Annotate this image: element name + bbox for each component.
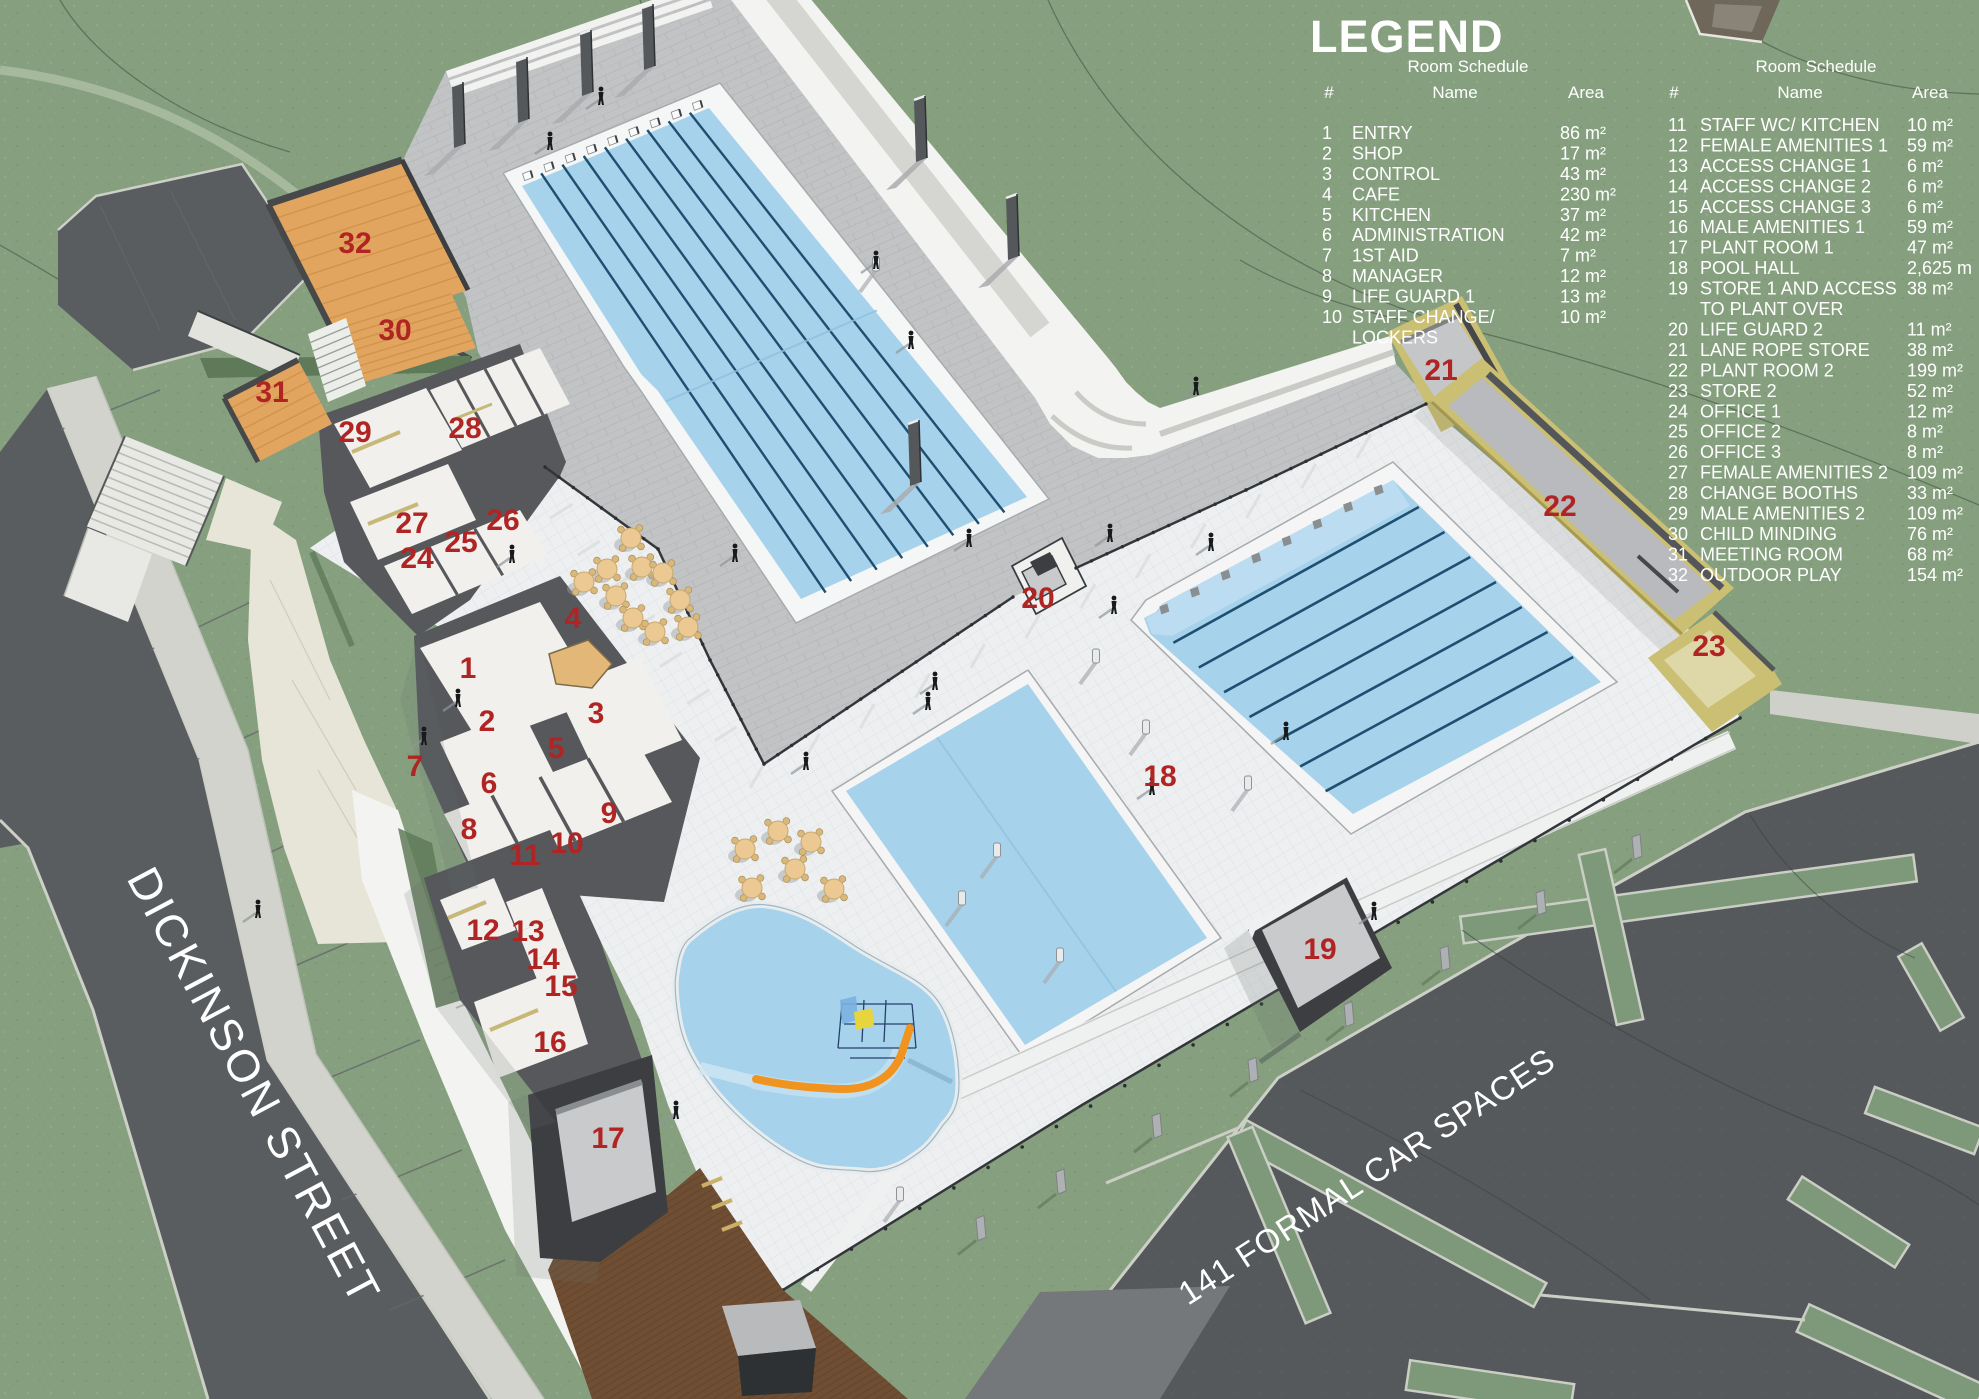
- svg-text:MALE AMENITIES 2: MALE AMENITIES 2: [1700, 504, 1865, 524]
- svg-text:37 m²: 37 m²: [1560, 205, 1606, 225]
- svg-text:24: 24: [1668, 401, 1688, 421]
- svg-text:KITCHEN: KITCHEN: [1352, 205, 1431, 225]
- svg-text:MANAGER: MANAGER: [1352, 266, 1443, 286]
- svg-text:10 m²: 10 m²: [1560, 307, 1606, 327]
- svg-text:6: 6: [1322, 225, 1332, 245]
- svg-text:17: 17: [1668, 238, 1688, 258]
- svg-text:7: 7: [407, 750, 424, 783]
- svg-text:OFFICE 2: OFFICE 2: [1700, 422, 1781, 442]
- svg-text:FEMALE AMENITIES 1: FEMALE AMENITIES 1: [1700, 135, 1888, 155]
- svg-text:1ST AID: 1ST AID: [1352, 246, 1419, 266]
- svg-text:26: 26: [486, 504, 519, 537]
- svg-text:Name: Name: [1777, 83, 1822, 102]
- svg-text:MEETING ROOM: MEETING ROOM: [1700, 544, 1843, 564]
- svg-text:16: 16: [533, 1026, 566, 1059]
- svg-text:Area: Area: [1912, 83, 1948, 102]
- svg-text:Area: Area: [1568, 83, 1604, 102]
- svg-text:11: 11: [1668, 115, 1687, 135]
- svg-text:3: 3: [1322, 164, 1332, 184]
- svg-text:20: 20: [1668, 320, 1688, 340]
- svg-text:38 m²: 38 m²: [1907, 279, 1953, 299]
- svg-text:13 m²: 13 m²: [1560, 287, 1606, 307]
- svg-text:59 m²: 59 m²: [1907, 135, 1953, 155]
- svg-text:POOL HALL: POOL HALL: [1700, 258, 1799, 278]
- svg-text:33 m²: 33 m²: [1907, 483, 1953, 503]
- svg-text:5: 5: [1322, 205, 1332, 225]
- svg-text:59 m²: 59 m²: [1907, 217, 1953, 237]
- svg-text:25: 25: [444, 526, 477, 559]
- svg-text:22: 22: [1668, 360, 1688, 380]
- svg-text:12: 12: [466, 914, 499, 947]
- svg-text:2: 2: [479, 705, 496, 738]
- svg-text:OFFICE 1: OFFICE 1: [1700, 401, 1781, 421]
- svg-text:109 m²: 109 m²: [1907, 504, 1963, 524]
- svg-text:Room Schedule: Room Schedule: [1408, 57, 1529, 76]
- svg-text:18: 18: [1143, 760, 1176, 793]
- svg-text:10: 10: [550, 827, 583, 860]
- svg-text:ACCESS CHANGE 2: ACCESS CHANGE 2: [1700, 176, 1871, 196]
- svg-text:LOCKERS: LOCKERS: [1352, 328, 1438, 348]
- svg-text:14: 14: [1668, 176, 1688, 196]
- svg-text:2,625 m: 2,625 m: [1907, 258, 1972, 278]
- svg-text:76 m²: 76 m²: [1907, 524, 1953, 544]
- svg-text:25: 25: [1668, 422, 1688, 442]
- svg-text:4: 4: [565, 602, 582, 635]
- svg-text:109 m²: 109 m²: [1907, 463, 1963, 483]
- svg-text:OFFICE 3: OFFICE 3: [1700, 442, 1781, 462]
- svg-text:43 m²: 43 m²: [1560, 164, 1606, 184]
- svg-text:12 m²: 12 m²: [1907, 401, 1953, 421]
- svg-text:MALE AMENITIES 1: MALE AMENITIES 1: [1700, 217, 1865, 237]
- svg-text:3: 3: [588, 697, 605, 730]
- svg-text:ACCESS CHANGE 3: ACCESS CHANGE 3: [1700, 197, 1871, 217]
- svg-text:2: 2: [1322, 143, 1332, 163]
- svg-text:1: 1: [1322, 123, 1332, 143]
- svg-text:16: 16: [1668, 217, 1688, 237]
- svg-text:28: 28: [448, 412, 481, 445]
- svg-text:6 m²: 6 m²: [1907, 176, 1943, 196]
- svg-text:ENTRY: ENTRY: [1352, 123, 1413, 143]
- svg-text:CHILD MINDING: CHILD MINDING: [1700, 524, 1837, 544]
- svg-text:29: 29: [338, 416, 371, 449]
- svg-text:42 m²: 42 m²: [1560, 225, 1606, 245]
- svg-text:28: 28: [1668, 483, 1688, 503]
- svg-text:8: 8: [1322, 266, 1332, 286]
- svg-text:32: 32: [1668, 565, 1688, 585]
- svg-text:7: 7: [1322, 246, 1332, 266]
- svg-text:LIFE GUARD 1: LIFE GUARD 1: [1352, 287, 1475, 307]
- svg-text:30: 30: [1668, 524, 1688, 544]
- svg-text:ACCESS CHANGE 1: ACCESS CHANGE 1: [1700, 156, 1871, 176]
- svg-text:11: 11: [509, 839, 541, 872]
- svg-text:32: 32: [338, 227, 371, 260]
- svg-text:12 m²: 12 m²: [1560, 266, 1606, 286]
- svg-text:18: 18: [1668, 258, 1688, 278]
- svg-text:13: 13: [1668, 156, 1688, 176]
- svg-text:15: 15: [1668, 197, 1688, 217]
- svg-text:STAFF CHANGE/: STAFF CHANGE/: [1352, 307, 1495, 327]
- svg-text:19: 19: [1303, 933, 1336, 966]
- svg-text:86 m²: 86 m²: [1560, 123, 1606, 143]
- svg-text:10 m²: 10 m²: [1907, 115, 1953, 135]
- svg-text:ADMINISTRATION: ADMINISTRATION: [1352, 225, 1505, 245]
- svg-text:29: 29: [1668, 504, 1688, 524]
- svg-text:8 m²: 8 m²: [1907, 422, 1943, 442]
- svg-text:7 m²: 7 m²: [1560, 246, 1596, 266]
- svg-text:SHOP: SHOP: [1352, 143, 1403, 163]
- svg-text:154 m²: 154 m²: [1907, 565, 1963, 585]
- svg-text:17 m²: 17 m²: [1560, 143, 1606, 163]
- svg-text:31: 31: [1668, 544, 1688, 564]
- svg-text:8 m²: 8 m²: [1907, 442, 1943, 462]
- svg-text:LIFE GUARD 2: LIFE GUARD 2: [1700, 320, 1823, 340]
- svg-text:20: 20: [1021, 582, 1054, 615]
- svg-text:9: 9: [601, 797, 618, 830]
- svg-text:6 m²: 6 m²: [1907, 156, 1943, 176]
- svg-text:Name: Name: [1432, 83, 1477, 102]
- svg-text:15: 15: [544, 970, 577, 1003]
- svg-text:47 m²: 47 m²: [1907, 238, 1953, 258]
- svg-text:23: 23: [1668, 381, 1688, 401]
- svg-text:22: 22: [1543, 490, 1576, 523]
- svg-text:#: #: [1669, 83, 1679, 102]
- svg-text:6: 6: [481, 767, 498, 800]
- svg-text:FEMALE AMENITIES 2: FEMALE AMENITIES 2: [1700, 463, 1888, 483]
- svg-text:9: 9: [1322, 287, 1332, 307]
- svg-text:Room Schedule: Room Schedule: [1756, 57, 1877, 76]
- svg-text:38 m²: 38 m²: [1907, 340, 1953, 360]
- svg-text:26: 26: [1668, 442, 1688, 462]
- svg-text:LANE ROPE STORE: LANE ROPE STORE: [1700, 340, 1870, 360]
- svg-text:30: 30: [378, 314, 411, 347]
- svg-text:PLANT ROOM 1: PLANT ROOM 1: [1700, 238, 1834, 258]
- svg-text:21: 21: [1424, 354, 1457, 387]
- svg-text:#: #: [1324, 83, 1334, 102]
- svg-text:STAFF WC/ KITCHEN: STAFF WC/ KITCHEN: [1700, 115, 1880, 135]
- svg-text:4: 4: [1322, 184, 1332, 204]
- svg-text:6 m²: 6 m²: [1907, 197, 1943, 217]
- svg-text:5: 5: [548, 732, 565, 765]
- svg-text:52 m²: 52 m²: [1907, 381, 1953, 401]
- svg-text:LEGEND: LEGEND: [1310, 11, 1504, 62]
- svg-text:24: 24: [400, 542, 434, 575]
- svg-text:CHANGE BOOTHS: CHANGE BOOTHS: [1700, 483, 1858, 503]
- svg-text:TO PLANT OVER: TO PLANT OVER: [1700, 299, 1843, 319]
- svg-text:23: 23: [1692, 630, 1725, 663]
- svg-text:CAFE: CAFE: [1352, 184, 1400, 204]
- svg-text:230 m²: 230 m²: [1560, 184, 1616, 204]
- svg-text:CONTROL: CONTROL: [1352, 164, 1440, 184]
- svg-text:19: 19: [1668, 279, 1688, 299]
- svg-text:OUTDOOR PLAY: OUTDOOR PLAY: [1700, 565, 1842, 585]
- svg-text:12: 12: [1668, 135, 1688, 155]
- svg-text:199 m²: 199 m²: [1907, 360, 1963, 380]
- svg-text:17: 17: [591, 1122, 624, 1155]
- svg-text:PLANT ROOM 2: PLANT ROOM 2: [1700, 360, 1834, 380]
- svg-text:27: 27: [395, 507, 428, 540]
- svg-text:STORE 2: STORE 2: [1700, 381, 1777, 401]
- svg-text:1: 1: [460, 652, 477, 685]
- svg-text:11 m²: 11 m²: [1907, 320, 1952, 340]
- svg-text:31: 31: [255, 376, 288, 409]
- svg-text:68 m²: 68 m²: [1907, 544, 1953, 564]
- svg-text:10: 10: [1322, 307, 1342, 327]
- svg-text:8: 8: [461, 813, 478, 846]
- svg-text:STORE 1 AND ACCESS: STORE 1 AND ACCESS: [1700, 279, 1897, 299]
- svg-text:21: 21: [1668, 340, 1688, 360]
- svg-text:27: 27: [1668, 463, 1688, 483]
